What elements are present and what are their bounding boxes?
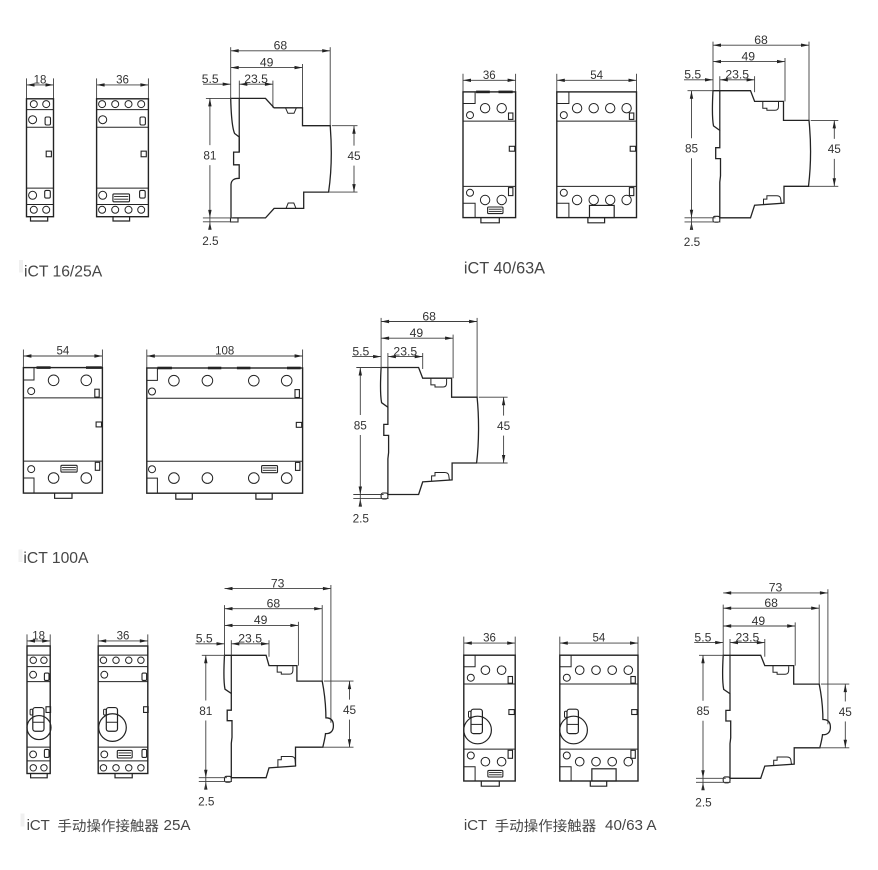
svg-text:18: 18 [32, 630, 45, 642]
svg-text:81: 81 [199, 704, 212, 718]
svg-text:68: 68 [274, 39, 288, 53]
svg-text:49: 49 [741, 49, 755, 63]
svg-text:23.5: 23.5 [736, 630, 760, 644]
svg-text:85: 85 [685, 142, 699, 156]
svg-text:2.5: 2.5 [202, 234, 219, 248]
svg-text:54: 54 [57, 346, 70, 358]
svg-text:85: 85 [354, 418, 368, 432]
svg-text:68: 68 [267, 597, 281, 611]
svg-text:73: 73 [271, 576, 285, 590]
svg-text:iCT: iCT [27, 817, 50, 834]
svg-text:45: 45 [497, 419, 511, 433]
svg-text:81: 81 [203, 148, 216, 162]
svg-text:iCT: iCT [464, 817, 487, 834]
svg-text:5.5: 5.5 [202, 72, 219, 86]
svg-text:68: 68 [422, 309, 436, 323]
svg-text:45: 45 [343, 703, 357, 717]
svg-text:108: 108 [215, 346, 234, 358]
svg-text:2.5: 2.5 [198, 795, 215, 809]
svg-text:49: 49 [260, 55, 274, 69]
svg-text:68: 68 [764, 596, 778, 610]
svg-text:36: 36 [116, 74, 129, 86]
svg-text:23.5: 23.5 [238, 632, 262, 646]
svg-text:18: 18 [34, 74, 47, 86]
svg-text:54: 54 [590, 70, 603, 82]
svg-text:25A: 25A [164, 817, 192, 834]
svg-text:5.5: 5.5 [352, 344, 369, 358]
svg-text:49: 49 [254, 613, 268, 627]
svg-text:2.5: 2.5 [695, 795, 712, 809]
svg-text:85: 85 [696, 704, 710, 718]
svg-text:49: 49 [410, 326, 424, 340]
svg-text:36: 36 [483, 70, 496, 82]
svg-text:49: 49 [752, 614, 766, 628]
svg-text:iCT 16/25A: iCT 16/25A [24, 264, 103, 281]
svg-text:54: 54 [593, 633, 606, 645]
svg-text:23.5: 23.5 [393, 344, 417, 358]
svg-text:73: 73 [769, 581, 783, 595]
svg-text:36: 36 [483, 633, 496, 645]
svg-text:45: 45 [347, 149, 361, 163]
svg-text:36: 36 [117, 630, 130, 642]
svg-text:5.5: 5.5 [684, 68, 701, 82]
svg-text:68: 68 [754, 33, 768, 47]
svg-text:45: 45 [839, 705, 853, 719]
svg-text:5.5: 5.5 [196, 632, 213, 646]
svg-text:5.5: 5.5 [694, 630, 711, 644]
svg-text:2.5: 2.5 [353, 512, 370, 526]
svg-text:23.5: 23.5 [725, 68, 749, 82]
svg-text:23.5: 23.5 [244, 72, 268, 86]
svg-text:2.5: 2.5 [684, 235, 701, 249]
svg-text:40/63 A: 40/63 A [605, 817, 657, 834]
svg-text:45: 45 [828, 142, 842, 156]
svg-text:iCT 40/63A: iCT 40/63A [464, 259, 545, 277]
svg-text:iCT 100A: iCT 100A [23, 550, 89, 567]
